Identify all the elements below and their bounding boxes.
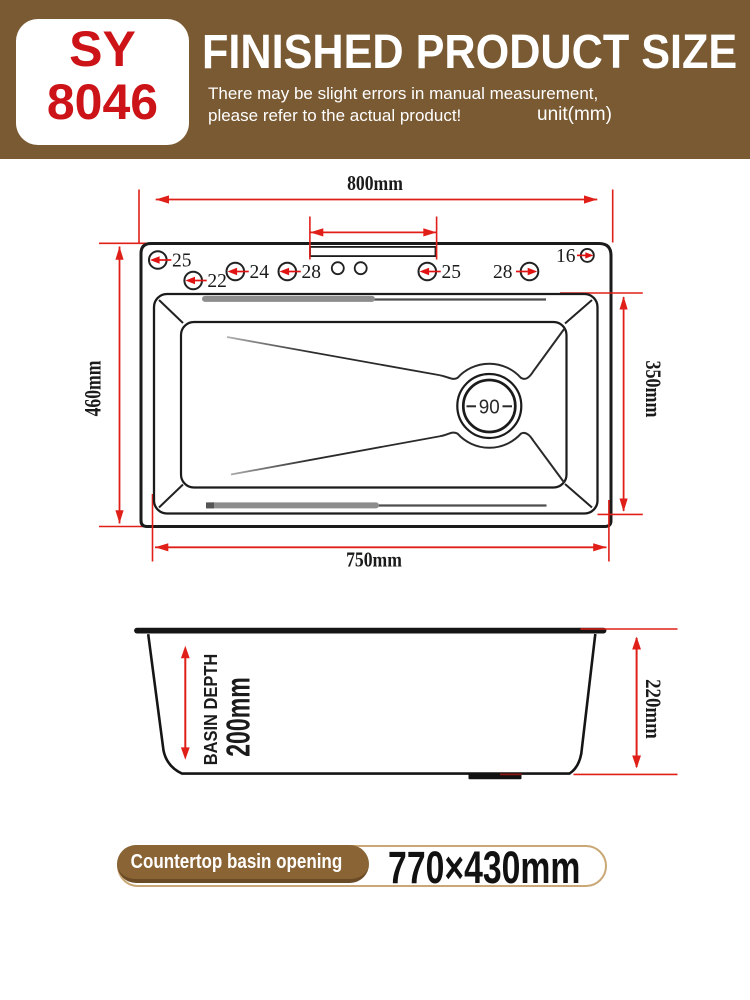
- svg-text:24: 24: [250, 262, 270, 283]
- svg-text:28: 28: [302, 262, 322, 283]
- svg-text:200mm: 200mm: [221, 677, 258, 757]
- svg-text:350mm: 350mm: [641, 361, 665, 418]
- svg-text:220mm: 220mm: [640, 679, 665, 739]
- svg-text:90: 90: [479, 396, 500, 419]
- svg-text:25: 25: [172, 251, 192, 272]
- svg-text:BASIN DEPTH: BASIN DEPTH: [200, 654, 221, 766]
- svg-text:25: 25: [442, 262, 462, 283]
- svg-text:16: 16: [556, 246, 576, 267]
- svg-text:28: 28: [493, 262, 513, 283]
- svg-text:22: 22: [207, 271, 227, 292]
- svg-text:800mm: 800mm: [347, 173, 403, 196]
- svg-text:460mm: 460mm: [80, 361, 106, 417]
- svg-text:750mm: 750mm: [346, 549, 402, 572]
